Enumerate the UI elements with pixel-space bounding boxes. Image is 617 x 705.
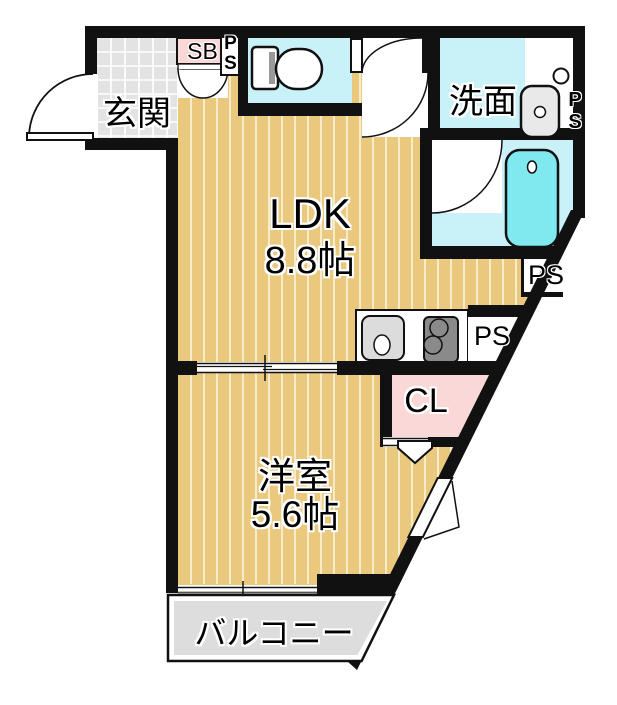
kitchen-sink-drain: [374, 335, 390, 355]
closet-label: CL: [390, 382, 462, 421]
balcony-label: バルコニー: [180, 608, 368, 654]
ldk-size-label: 8.8帖: [235, 229, 385, 284]
washroom-door-area: [362, 73, 428, 137]
pipe-shaft-kitchen-label: PS: [466, 321, 518, 352]
entrance-door-arc: [29, 74, 93, 136]
bathtub-drain: [528, 161, 537, 173]
stove-burner-1: [430, 319, 448, 337]
entrance-label: 玄関: [95, 86, 179, 135]
washroom-label: 洗面: [438, 74, 528, 123]
western-room-size-label: 5.6帖: [215, 484, 375, 538]
pipe-shaft-right-label: P S: [564, 89, 586, 133]
entrance-door-leaf: [27, 133, 93, 140]
toilet-door-leaf: [351, 39, 362, 72]
stove-burner-2: [424, 336, 442, 354]
toilet-icon: [252, 47, 322, 89]
bath-door-area: [432, 140, 502, 213]
pipe-shaft-bath-label: PS: [522, 260, 570, 291]
floor-plan: 玄関 SB P S 洗面 P S LDK 8.8帖 PS PS CL 洋室 5.…: [0, 0, 617, 705]
pipe-shaft-top-label: P S: [220, 34, 241, 74]
